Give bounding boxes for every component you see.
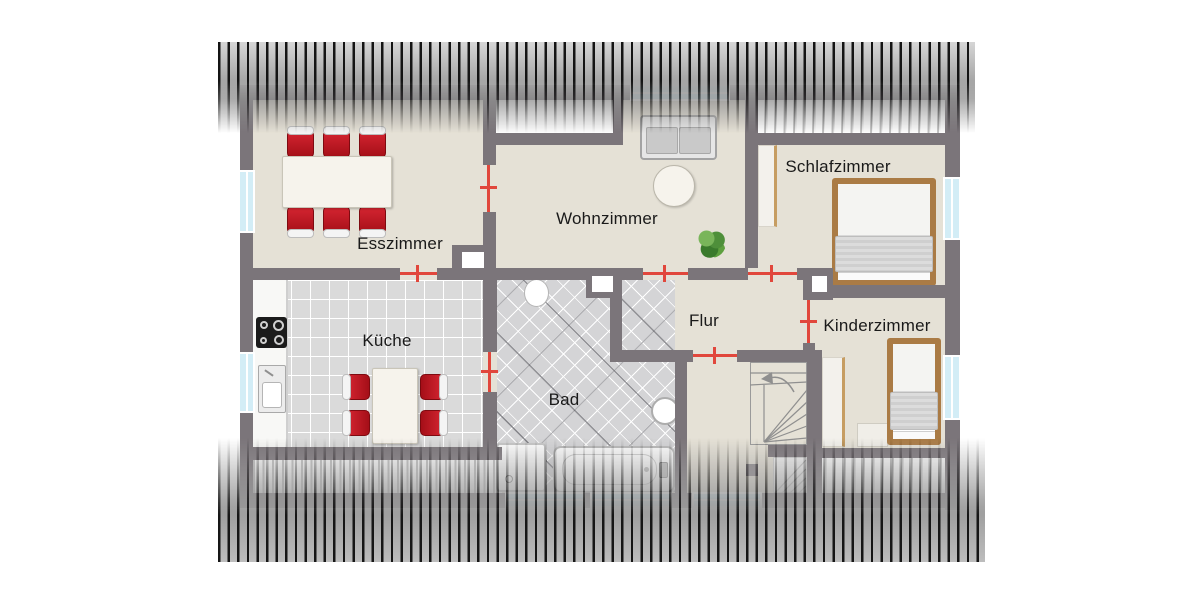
wall-segment xyxy=(810,285,945,298)
room-label-kinderzimmer: Kinderzimmer xyxy=(823,316,930,336)
dining-chair xyxy=(287,206,314,234)
knee-strip-schlafzimmer xyxy=(745,100,945,133)
wall-segment xyxy=(240,85,253,507)
door-marker xyxy=(770,265,773,282)
wall-segment xyxy=(253,447,502,460)
wall-segment xyxy=(483,280,497,352)
wall-segment xyxy=(675,362,687,493)
kitchen-table xyxy=(372,368,418,444)
door-marker xyxy=(416,265,419,282)
toilet xyxy=(524,279,549,307)
single-bed xyxy=(887,338,941,445)
door-marker xyxy=(800,320,817,323)
desk xyxy=(857,423,888,447)
door-marker xyxy=(663,265,666,282)
room-label-bad: Bad xyxy=(549,390,580,410)
chimney-flue xyxy=(812,276,827,292)
wall-segment xyxy=(483,392,497,447)
sofa xyxy=(640,115,717,160)
chimney-flue xyxy=(592,276,613,292)
kitchen-counter xyxy=(253,280,288,447)
roof-niche-wohnzimmer xyxy=(496,97,613,133)
wardrobe xyxy=(758,145,777,227)
wall-segment xyxy=(807,350,822,493)
coffee-table xyxy=(653,165,695,207)
room-label-schlafzimmer: Schlafzimmer xyxy=(785,157,890,177)
window xyxy=(943,177,961,240)
bathtub xyxy=(553,446,675,493)
wall-segment xyxy=(745,85,758,145)
wall-segment xyxy=(240,85,960,100)
wardrobe xyxy=(822,357,845,447)
dining-table xyxy=(282,156,392,208)
room-label-esszimmer: Esszimmer xyxy=(357,234,443,254)
chimney-flue xyxy=(462,252,484,268)
dining-chair xyxy=(287,130,314,158)
room-label-wohnzimmer: Wohnzimmer xyxy=(556,209,658,229)
window xyxy=(238,352,255,413)
knee-strip-kinderzimmer xyxy=(815,458,945,497)
stair-newel-post xyxy=(746,464,758,476)
wall-segment xyxy=(437,268,483,280)
shower xyxy=(496,443,546,492)
door-marker xyxy=(481,370,498,373)
wall-segment xyxy=(496,268,643,280)
window xyxy=(692,492,762,508)
wall-segment xyxy=(496,133,623,145)
room-label-flur: Flur xyxy=(689,311,719,331)
wall-segment xyxy=(610,350,693,362)
floor-plan: Esszimmer Wohnzimmer Schlafzimmer Küche … xyxy=(0,0,1200,600)
stair-direction-arrow xyxy=(761,372,773,384)
window xyxy=(238,170,255,233)
double-bed xyxy=(832,178,936,286)
kitchen-sink xyxy=(258,365,286,413)
window xyxy=(505,492,585,508)
wall-segment xyxy=(253,268,400,280)
kitchen-chair xyxy=(346,374,370,400)
wall-segment xyxy=(688,268,748,280)
window xyxy=(590,492,672,508)
kitchen-chair xyxy=(420,374,444,400)
kitchen-chair xyxy=(420,410,444,436)
staircase-lower-flight xyxy=(773,457,807,493)
wall-segment xyxy=(945,85,960,510)
wall-segment xyxy=(483,85,496,165)
cooktop xyxy=(256,317,287,348)
wall-segment xyxy=(613,97,623,135)
kitchen-chair xyxy=(346,410,370,436)
window xyxy=(630,84,730,101)
wall-segment xyxy=(745,133,945,145)
staircase xyxy=(750,362,807,445)
dining-chair xyxy=(359,130,386,158)
wall-segment xyxy=(745,145,758,268)
dining-chair xyxy=(323,206,350,234)
dining-chair xyxy=(323,130,350,158)
door-marker xyxy=(713,347,716,364)
room-label-kueche: Küche xyxy=(362,331,411,351)
door-marker xyxy=(480,186,497,189)
wall-segment xyxy=(768,445,822,457)
window xyxy=(943,355,961,420)
wall-segment xyxy=(815,448,945,458)
plant xyxy=(696,228,726,258)
dining-chair xyxy=(359,206,386,234)
knee-strip-kueche xyxy=(253,460,502,493)
